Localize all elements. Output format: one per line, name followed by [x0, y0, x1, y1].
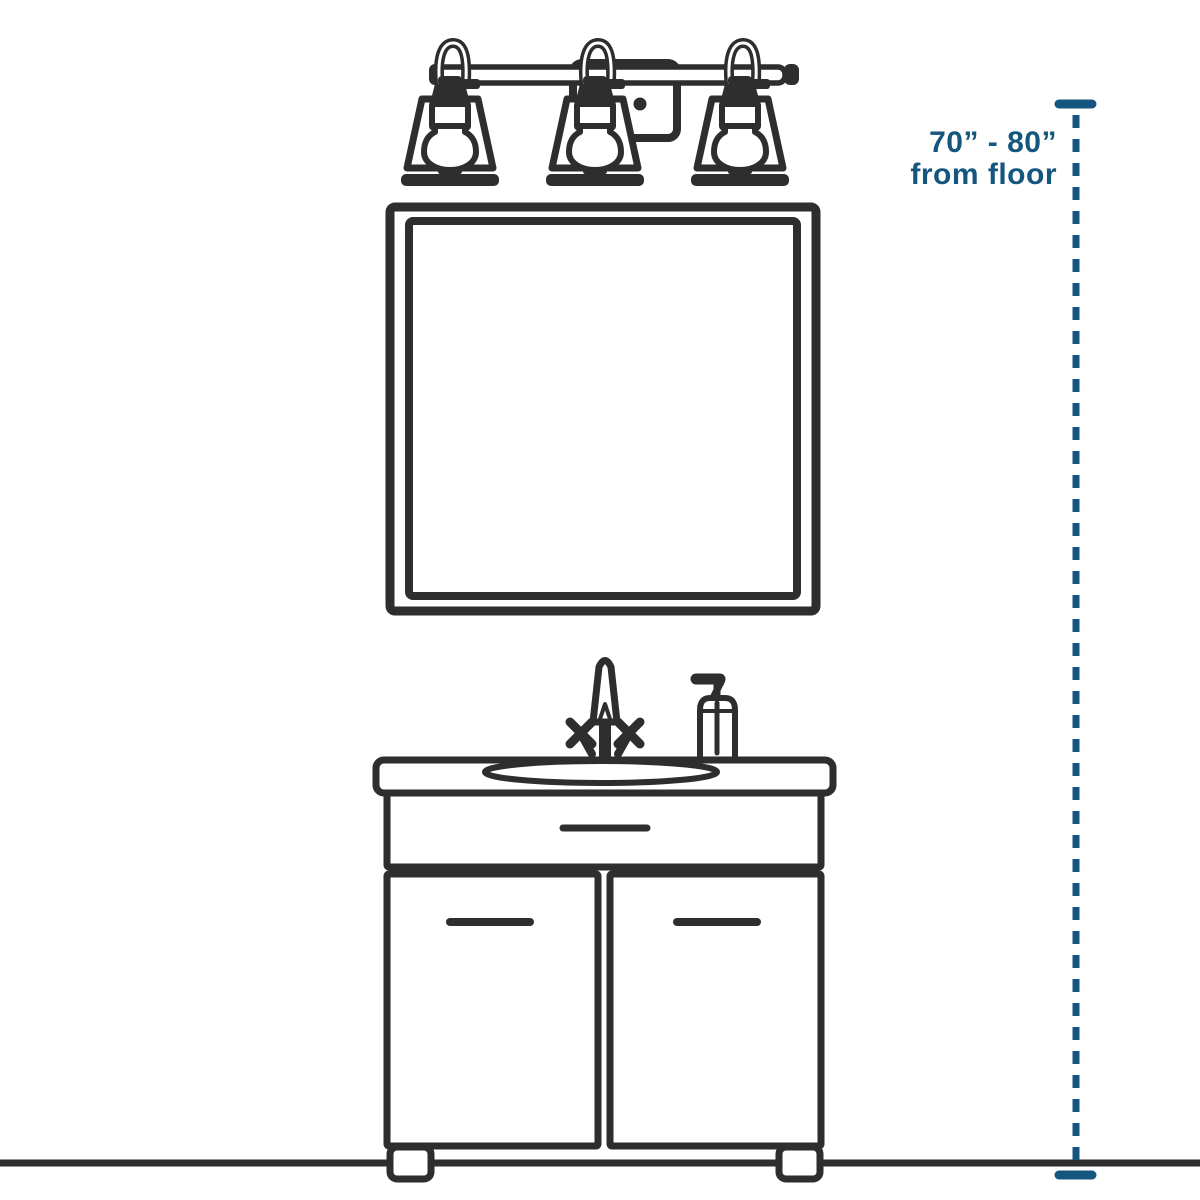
bathroom-vanity-diagram: 70” - 80” from floor [0, 0, 1200, 1200]
faucet [570, 661, 640, 758]
fixture-bar-right-cap [784, 64, 799, 85]
soap-dispenser [696, 679, 735, 760]
diagram-canvas: 70” - 80” from floor [0, 0, 1200, 1200]
cabinet-door-left [387, 874, 598, 1146]
vanity-top [376, 760, 833, 793]
measurement-from-floor-label: from floor [910, 158, 1057, 191]
mirror-inner-frame [409, 221, 797, 596]
measurement-range-label: 70” - 80” [929, 126, 1057, 159]
faucet-handle-right [618, 722, 640, 754]
height-measurement: 70” - 80” from floor [910, 104, 1092, 1175]
vanity-foot-right [779, 1147, 820, 1179]
vanity-cabinet [387, 793, 821, 1146]
vanity-foot-left [390, 1147, 431, 1179]
faucet-spout [593, 661, 617, 723]
sink-basin [485, 761, 717, 783]
vanity-light-fixture [401, 43, 799, 186]
mirror [390, 207, 816, 611]
faucet-handle-left [570, 722, 592, 754]
mounting-screw [634, 98, 647, 111]
cabinet-door-right [610, 874, 821, 1146]
